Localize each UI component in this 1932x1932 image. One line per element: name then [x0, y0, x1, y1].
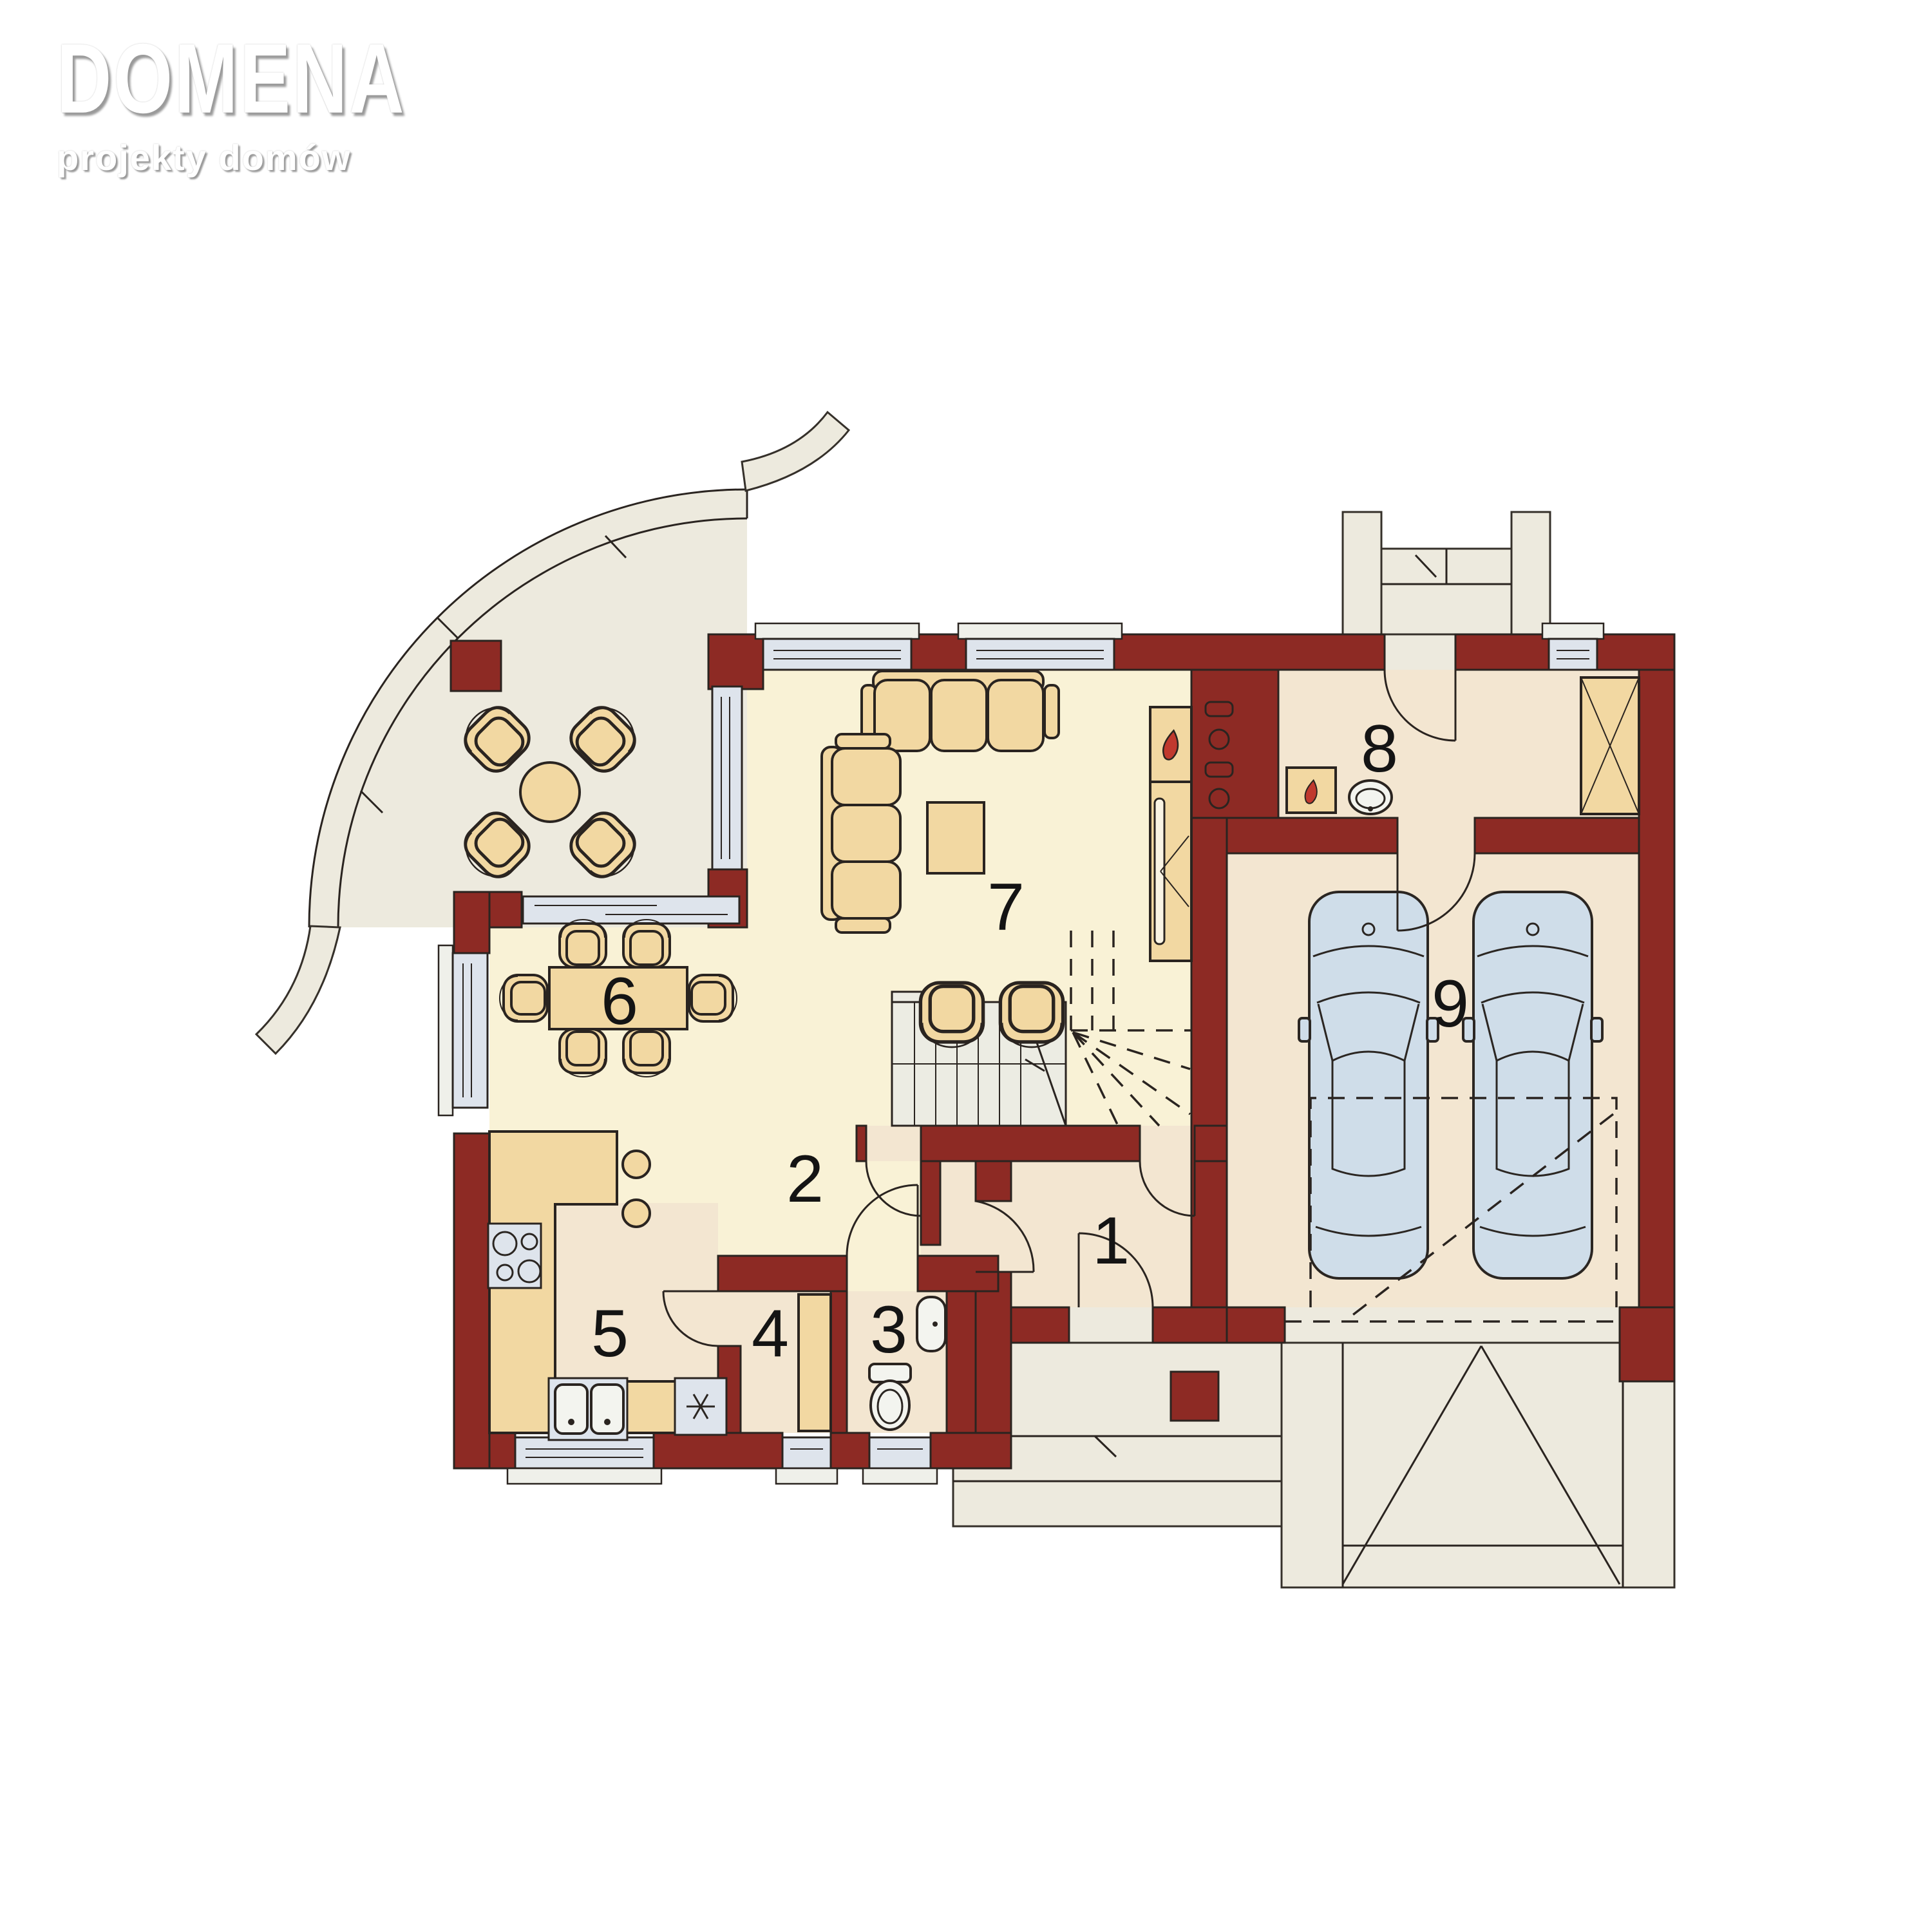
room-label-3: 3 — [870, 1293, 907, 1367]
wall — [454, 892, 489, 953]
door-opening — [847, 1256, 918, 1291]
chimney-block — [1191, 670, 1278, 818]
room-label-1: 1 — [1092, 1204, 1130, 1278]
terrace-floor — [309, 489, 747, 927]
door-opening — [866, 1126, 921, 1161]
wall — [1620, 1307, 1674, 1381]
wall — [654, 1433, 782, 1468]
door-opening — [1397, 818, 1475, 853]
car-icon — [1299, 892, 1438, 1278]
bar-stool-icon — [623, 1151, 650, 1178]
wall — [718, 1256, 847, 1291]
floor-plan: 1 2 3 4 5 6 7 8 9 — [0, 0, 1932, 1932]
freezer-icon — [675, 1378, 726, 1435]
window — [755, 623, 919, 670]
wall — [1153, 1307, 1227, 1343]
door-opening — [1069, 1307, 1153, 1343]
door-opening — [718, 1291, 741, 1346]
room-label-5: 5 — [591, 1296, 629, 1371]
sofa-icon — [862, 671, 1059, 751]
door-opening — [1385, 634, 1455, 670]
wall — [489, 1433, 515, 1468]
terrace-walkway-bottom — [256, 926, 340, 1054]
garage-door-opening — [1285, 1307, 1620, 1343]
pantry-counter — [799, 1294, 831, 1431]
wall — [857, 1126, 866, 1161]
bar-stool-icon — [623, 1200, 650, 1227]
wall — [921, 1126, 1140, 1161]
window — [776, 1437, 837, 1484]
wall — [1227, 1307, 1285, 1343]
terrace-walkway-top — [742, 412, 849, 491]
floor-plan-canvas: DOMENA projekty domów — [0, 0, 1932, 1932]
wall — [454, 1133, 489, 1468]
porch-pillar — [1171, 1372, 1218, 1421]
wall — [708, 634, 763, 689]
chair-icon — [560, 1029, 606, 1077]
wall — [831, 1291, 847, 1433]
car-icon — [1463, 892, 1602, 1278]
wall — [1114, 634, 1385, 670]
room-label-8: 8 — [1361, 712, 1398, 786]
wall — [831, 1433, 869, 1468]
terrace-table-icon — [520, 762, 580, 822]
terrace-sliding-door — [523, 896, 739, 923]
boiler-icon — [1287, 768, 1336, 813]
window — [1542, 623, 1604, 670]
terrace-chimney-block — [451, 641, 501, 691]
side-porch-pillar — [1343, 512, 1381, 634]
wall — [918, 1256, 998, 1291]
wall — [1191, 818, 1227, 1307]
wall — [1597, 634, 1674, 670]
toilet-icon — [869, 1364, 911, 1430]
wall — [921, 1161, 940, 1245]
wall — [1455, 634, 1549, 670]
room-label-9: 9 — [1432, 967, 1469, 1041]
armchair-icon — [920, 983, 983, 1047]
door-opening — [1140, 1126, 1195, 1161]
room-label-2: 2 — [786, 1142, 824, 1217]
wall — [489, 892, 522, 927]
tv-cabinet-icon — [1150, 782, 1191, 961]
room-label-6: 6 — [601, 964, 638, 1039]
window — [958, 623, 1122, 670]
window — [863, 1437, 937, 1484]
armchair-icon — [1000, 983, 1063, 1047]
wall — [947, 1291, 976, 1433]
side-porch-pillar — [1511, 512, 1550, 634]
wall — [1227, 818, 1397, 853]
wall — [976, 1161, 1011, 1201]
kitchen-sink-icon — [549, 1378, 627, 1440]
room-label-7: 7 — [987, 870, 1025, 945]
driveway — [1282, 1343, 1674, 1587]
chair-icon — [560, 920, 606, 967]
room-label-4: 4 — [752, 1296, 789, 1371]
fireplace-icon — [1150, 707, 1191, 782]
window — [439, 945, 488, 1115]
cooktop-icon — [488, 1224, 541, 1288]
wardrobe-icon — [1581, 677, 1639, 814]
sofa-icon — [822, 734, 900, 933]
wall — [1639, 670, 1674, 1343]
window — [507, 1437, 661, 1484]
chair-icon — [623, 920, 670, 967]
wall — [931, 1433, 1011, 1468]
coffee-table-icon — [927, 802, 984, 873]
wall — [976, 1272, 1011, 1433]
washbasin-icon — [917, 1297, 945, 1351]
chair-icon — [689, 975, 737, 1021]
chair-icon — [500, 975, 547, 1021]
wall — [1195, 1126, 1227, 1161]
wall — [1475, 818, 1639, 853]
patio-door — [712, 687, 742, 869]
